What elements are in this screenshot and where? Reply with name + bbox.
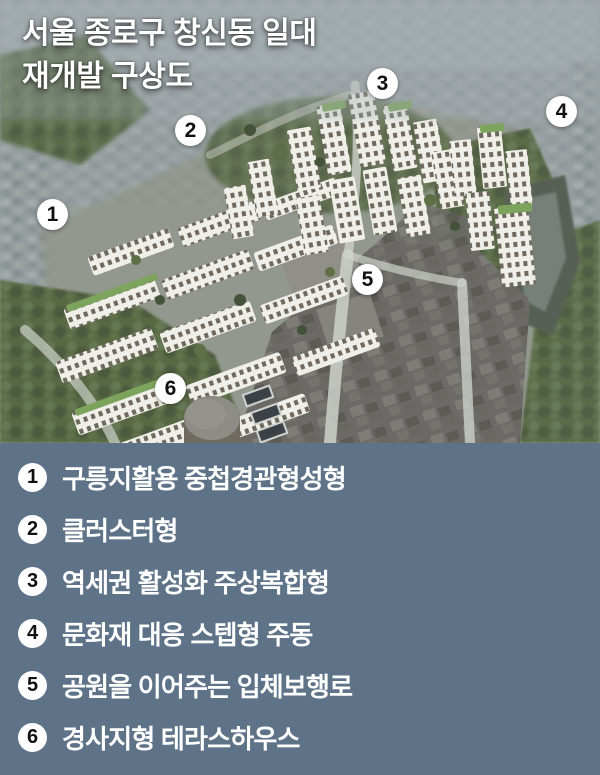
legend-label: 공원을 이어주는 입체보행로 [62,667,352,704]
legend-number-badge: 3 [18,567,47,596]
legend-label: 경사지형 테라스하우스 [62,719,300,756]
legend-item-1: 1 구릉지활용 중첩경관형성형 [18,459,586,495]
legend-number-badge: 2 [18,515,47,544]
legend-label: 문화재 대응 스텝형 주동 [62,615,312,652]
legend-item-2: 2 클러스터형 [18,511,586,547]
page-title: 서울 종로구 창신동 일대 재개발 구상도 [22,12,317,98]
legend-label: 역세권 활성화 주상복합형 [62,563,329,600]
map-marker-2: 2 [175,115,206,146]
legend-item-3: 3 역세권 활성화 주상복합형 [18,563,586,599]
map-marker-5: 5 [352,264,383,295]
legend-label: 구릉지활용 중첩경관형성형 [62,459,346,496]
legend-number-badge: 1 [18,463,47,492]
legend-label: 클러스터형 [62,511,178,548]
map-marker-4: 4 [546,96,577,127]
legend-number-badge: 5 [18,671,47,700]
map-marker-6: 6 [155,373,186,404]
legend-item-5: 5 공원을 이어주는 입체보행로 [18,667,586,703]
legend-item-6: 6 경사지형 테라스하우스 [18,719,586,755]
map-marker-3: 3 [367,68,398,99]
map-marker-1: 1 [37,199,68,230]
page-title-line2: 재개발 구상도 [22,55,317,98]
redevelopment-infographic: 서울 종로구 창신동 일대 재개발 구상도 1 2 3 4 5 6 1 구릉지활… [0,0,600,775]
legend-item-4: 4 문화재 대응 스텝형 주동 [18,615,586,651]
legend-panel: 1 구릉지활용 중첩경관형성형 2 클러스터형 3 역세권 활성화 주상복합형 … [0,443,600,775]
page-title-line1: 서울 종로구 창신동 일대 [22,12,317,55]
legend-number-badge: 6 [18,723,47,752]
legend-number-badge: 4 [18,619,47,648]
